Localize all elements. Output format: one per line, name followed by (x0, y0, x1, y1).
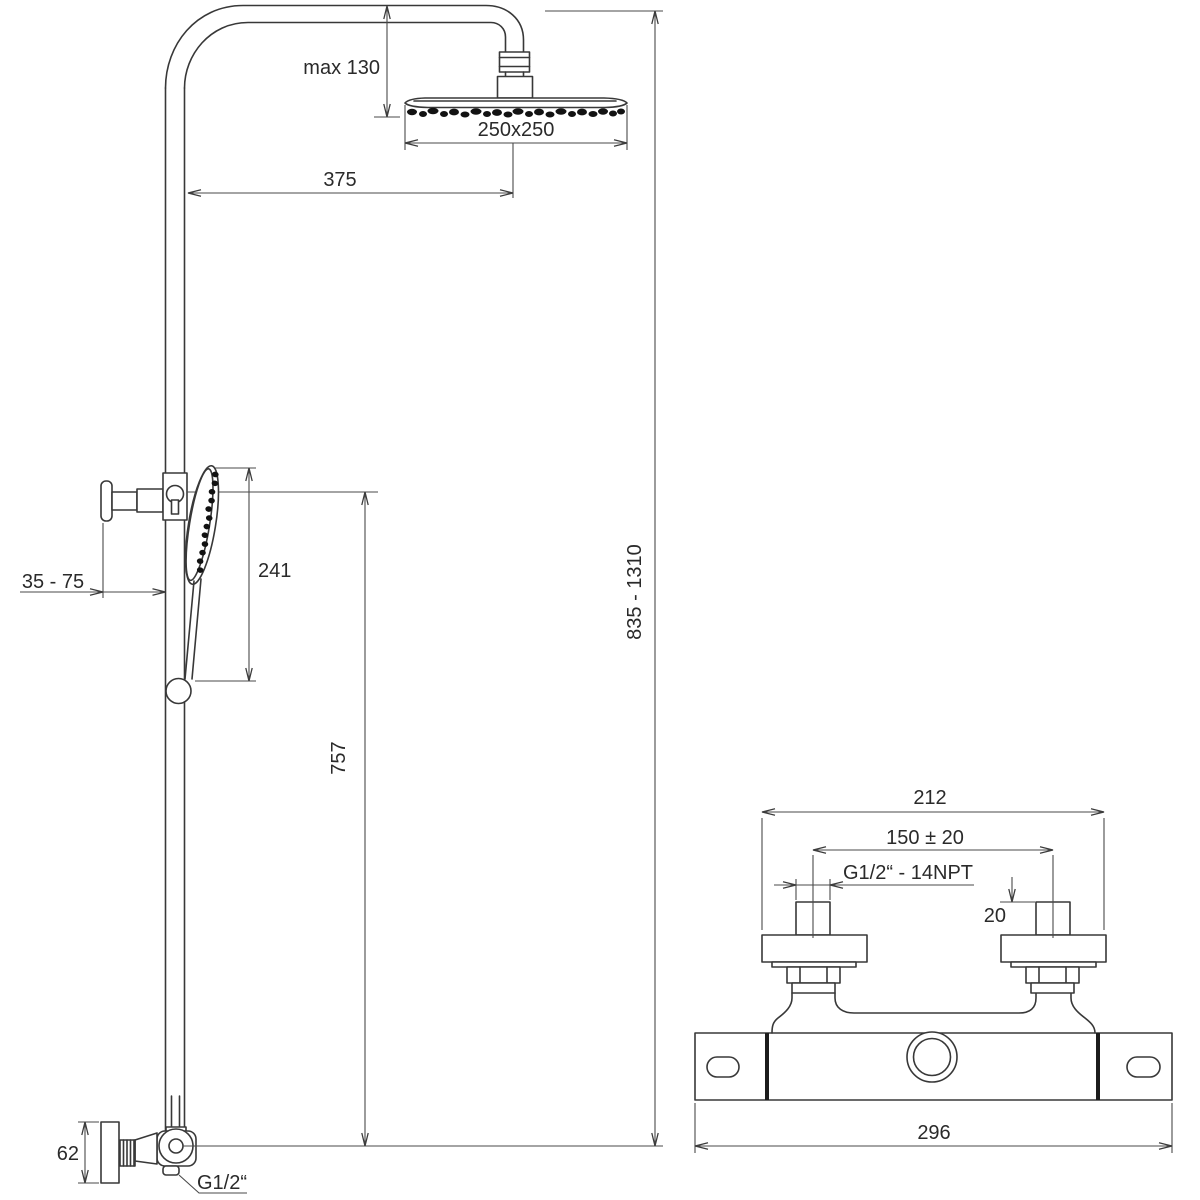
dim-label-wall-plate-height: 62 (57, 1143, 79, 1165)
dimension-rail-travel: 757 (328, 492, 368, 1146)
dimension-overall-height: 835 - 1310 (545, 11, 663, 1146)
dimension-overall-width: 296 (695, 1103, 1172, 1153)
dim-label-head-size: 250x250 (478, 119, 555, 141)
dim-label-thread-spec: G1/2“ - 14NPT (843, 862, 973, 884)
wall-plate (101, 1122, 119, 1183)
dim-label-wall-clearance: 35 - 75 (22, 571, 84, 593)
dim-label-hand-shower-length: 241 (258, 560, 291, 582)
dimension-wall-clearance: 35 - 75 (20, 523, 166, 598)
label-inlet-thread: G1/2“ (197, 1172, 247, 1194)
dim-label-rail-travel: 757 (328, 741, 350, 774)
inlet-thread-callout: G1/2“ (179, 1172, 247, 1194)
shower-arm-connector (498, 52, 533, 98)
overhead-shower-head (405, 98, 627, 118)
dimension-wall-plate-height: 62 (57, 1122, 99, 1183)
dim-label-overall-width: 296 (917, 1122, 950, 1144)
hand-shower-ball (166, 679, 191, 704)
inlet-connector-left (762, 902, 867, 993)
hand-shower-handle (185, 579, 201, 679)
overhead-nozzles (407, 108, 625, 118)
dim-label-arm-reach: 375 (323, 169, 356, 191)
dim-label-inlet-centers: 150 ± 20 (886, 827, 964, 849)
dim-label-body-width: 212 (913, 787, 946, 809)
dim-label-max-head-drop: max 130 (303, 57, 380, 79)
dim-label-overall-height: 835 - 1310 (624, 544, 646, 640)
mixer-body (695, 993, 1172, 1100)
technical-drawing-page: max 130 250x250 375 (0, 0, 1200, 1200)
dimension-head-size: 250x250 (405, 105, 627, 198)
thermostat-dial (907, 1032, 957, 1082)
hose-outlet (163, 1166, 179, 1175)
mixer-valve-view: 212 150 ± 20 G1/2“ - 14NPT 20 296 (695, 787, 1172, 1153)
dimension-thread-spec: G1/2“ - 14NPT (774, 862, 974, 900)
dimension-inlet-centers: 150 ± 20 (813, 827, 1053, 853)
dimension-stub-height: 20 (984, 877, 1035, 927)
inlet-valve (101, 1096, 196, 1183)
dimension-arm-reach: 375 (188, 169, 513, 196)
shower-system-drawing: max 130 250x250 375 (0, 0, 1200, 1200)
dim-label-stub-height: 20 (984, 905, 1006, 927)
slider-bracket (101, 473, 187, 521)
shower-column-view: max 130 250x250 375 (20, 6, 663, 1195)
